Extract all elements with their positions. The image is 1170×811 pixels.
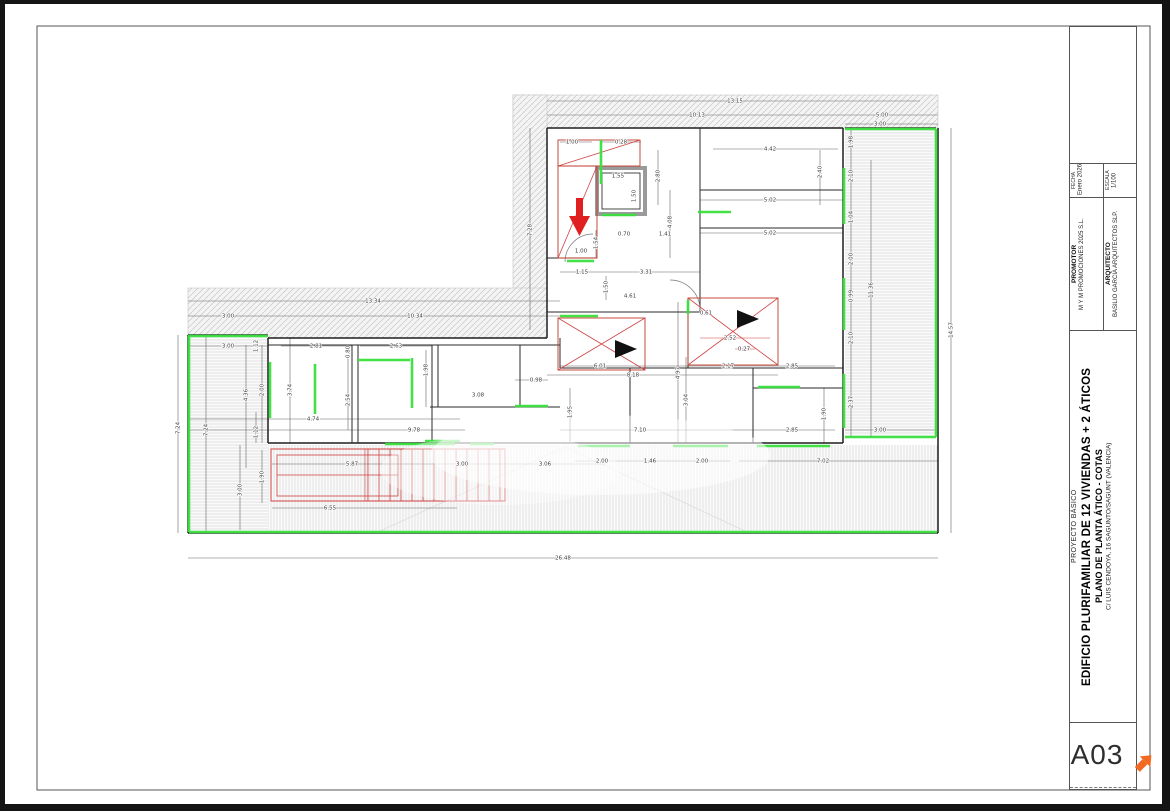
title-block: FECHA Enero 2026 ESCALA 1/100 PROMOTOR M… [1069,26,1137,790]
title-block-meta: FECHA Enero 2026 ESCALA 1/100 [1070,164,1136,198]
dimension-label: 2.17 [722,364,735,370]
dimension-label: 6.55 [324,506,337,512]
dimension-label: 4.42 [764,147,776,153]
dimension-label: 2.37 [849,395,855,408]
dimension-label: 2.10 [849,331,855,344]
dimension-label: 3.74 [288,383,294,396]
dimension-label: 2.40 [818,165,824,178]
dimension-label: 1.98 [424,363,430,376]
dimension-label: 3.00 [874,122,887,128]
title-block-firms: PROMOTOR M Y M PROMOCIONES 2025 S.L. ARQ… [1070,198,1136,331]
project-type: PROYECTO BÁSICO [1071,333,1080,720]
dimension-label: 13.34 [365,299,381,305]
dimension-label: 10.34 [407,314,423,320]
sheet-number: A03 [1071,739,1136,771]
dimension-label: 7.24 [204,423,210,436]
dimension-label: 3.08 [472,393,485,399]
stair-direction-arrows [569,198,759,358]
dimension-label: 0.80 [346,345,352,358]
dimension-label: 1.15 [576,270,589,276]
plan-title: PLANO DE PLANTA ÁTICO - COTAS [1094,333,1105,720]
dimension-label: 5.87 [346,462,359,468]
dimension-label: 7.28 [528,223,534,236]
sheet-number-box: A03 [1070,723,1136,788]
dimension-label: 5.02 [764,198,776,204]
dimension-label: 1.12 [254,340,260,352]
dimension-label: 4.61 [624,294,636,300]
dimension-label: 1.50 [632,189,638,202]
dimension-label: 7.10 [634,428,647,434]
dimension-label: 2.10 [849,169,855,182]
dimension-label: 14.57 [949,322,955,338]
dimension-label: 4.97 [676,366,682,379]
floor-plan-drawing: 13.1510.135.003.007.281.000.281.551.502.… [0,0,1170,811]
dimension-label: 1.55 [612,174,625,180]
dimension-label: 3.06 [539,462,552,468]
black-right-arrow-icon [737,310,759,328]
dimension-label: 13.15 [727,99,743,105]
project-title: EDIFICIO PLURIFAMILIAR DE 12 VIVIENDAS +… [1080,333,1094,720]
screenshot-stage: 13.1510.135.003.007.281.000.281.551.502.… [0,0,1170,811]
dimension-label: 1.00 [566,140,579,146]
dimension-label: 26.48 [555,556,571,562]
dimension-label: 0.28 [615,140,628,146]
dimension-label: 2.00 [260,383,266,396]
dimension-label: 4.08 [668,215,674,228]
escala-value: 1/100 [1111,166,1119,195]
promotor-cell: PROMOTOR M Y M PROMOCIONES 2025 S.L. [1070,198,1103,330]
dimension-label: 2.63 [390,344,403,350]
dimension-label: 0.70 [618,232,631,238]
neighbour-hatch-areas [188,95,938,338]
dimension-label: 4.74 [307,417,320,423]
arquitecto-value: BASILIO GARCIA ARQUITECTOS SLP. [1113,200,1121,328]
dimension-label: 3.31 [640,270,652,276]
dimension-label: 2.00 [596,459,609,465]
dimension-label: 7.24 [176,421,182,434]
dimension-label: 3.00 [456,462,469,468]
project-address: C/ LUIS CENDOYA, 16 SAGUNTO/SAGUNT (VALE… [1105,333,1113,720]
arquitecto-label: ARQUITECTO [1105,200,1113,328]
title-block-empty-box [1070,27,1136,164]
dimension-label: 2.85 [786,428,799,434]
dimension-label: 2.00 [696,459,709,465]
dimension-label: 5.02 [764,231,776,237]
dimension-label: 0.99 [849,289,855,302]
dimension-label: 5.00 [876,113,889,119]
dimension-label: 6.01 [594,364,606,370]
promotor-value: M Y M PROMOCIONES 2025 S.L. [1079,200,1087,328]
dimension-label: 1.95 [568,405,574,418]
dimension-label: 7.02 [817,459,829,465]
black-right-arrow-icon [615,340,637,358]
dimension-label: 1.50 [604,280,610,293]
dimension-label: 1.46 [644,459,657,465]
red-down-arrow-icon [569,198,590,236]
dimension-label: 2.85 [786,364,799,370]
dimension-label: 1.90 [822,407,828,420]
dimension-label: 3.00 [222,344,235,350]
dimension-label: 1.54 [594,236,600,249]
dimension-label: 2.81 [310,344,322,350]
dimension-label: 3.00 [222,314,235,320]
dimension-label: 2.54 [346,393,352,406]
dimension-label: 2.52 [724,336,736,342]
fecha-cell: FECHA Enero 2026 [1070,164,1103,197]
dimension-label: 1.04 [849,210,855,223]
dimension-label: 1.98 [849,135,855,148]
dimension-label: 1.41 [659,232,671,238]
title-block-project: PROYECTO BÁSICO EDIFICIO PLURIFAMILIAR D… [1070,331,1136,723]
promotor-label: PROMOTOR [1071,200,1079,328]
dimension-label: 4.36 [244,388,250,401]
dimension-label: 0.27 [738,347,751,353]
dimension-label: 2.80 [656,169,662,182]
studio-arrow-logo-icon [1133,751,1155,773]
dimension-label: 2.00 [849,252,855,265]
dimension-label: 8.18 [627,373,640,379]
dimension-label: 3.04 [684,393,690,406]
dimension-label: 3.00 [238,483,244,496]
dimension-label: 3.00 [874,428,887,434]
dimension-label: 0.98 [530,378,543,384]
dimension-label: 9.78 [408,428,421,434]
dimension-label: 11.36 [869,282,875,298]
dimension-label: 1.12 [254,426,260,438]
dimension-label: 10.13 [689,113,705,119]
dimension-label: 1.90 [260,470,266,483]
arquitecto-cell: ARQUITECTO BASILIO GARCIA ARQUITECTOS SL… [1103,198,1136,330]
dimension-label: 0.61 [700,311,712,317]
escala-cell: ESCALA 1/100 [1103,164,1136,197]
fecha-value: Enero 2026 [1077,166,1085,195]
dimension-label: 1.00 [575,249,588,255]
